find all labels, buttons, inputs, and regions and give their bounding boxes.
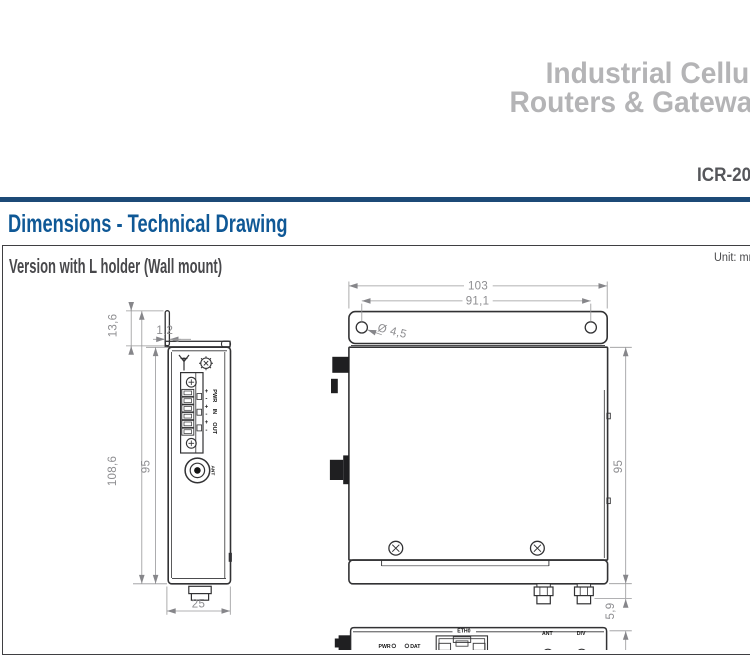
out-label: OUT — [211, 422, 217, 434]
div-port-label: DIV — [577, 631, 586, 637]
mounting-hole-right — [585, 322, 596, 333]
base-strip — [349, 560, 608, 584]
ant-port-label: ANT — [542, 631, 553, 637]
wall-bracket-side — [165, 311, 230, 347]
in-label: IN — [211, 409, 217, 415]
dim-hole-spacing: 91,1 — [466, 296, 490, 308]
technical-drawing-canvas: + - + - + - PWR IN OUT ANT — [0, 0, 750, 650]
side-antenna-connector-nut — [330, 460, 343, 480]
pin-sign: - — [205, 411, 207, 418]
antenna-ports-bottom: ANT DIV — [542, 631, 587, 650]
gear-icon — [199, 356, 213, 370]
side-connector-upper-tip — [331, 379, 338, 393]
device-body-side — [168, 347, 232, 584]
pin-sign: - — [205, 427, 207, 434]
terminal-block — [181, 373, 203, 453]
dimensions-bottom — [610, 631, 632, 650]
side-connector-upper — [332, 357, 349, 373]
pin-sign: + — [205, 403, 209, 410]
dim-connector-protrusion: 5,9 — [605, 603, 617, 620]
dim-overall-height: 108,6 — [107, 456, 119, 486]
dim-body-depth: 25 — [192, 599, 205, 611]
mounting-hole-left — [356, 322, 367, 333]
dim-bracket-thickness: 1,2 — [156, 325, 173, 337]
terminal-pin-labels: + - + - + - PWR IN OUT — [205, 388, 217, 435]
ant-connector-front — [534, 584, 553, 604]
dim-bracket-width: 103 — [468, 281, 488, 293]
screw-right — [531, 541, 545, 555]
dim-hole-diameter: Ø 4,5 — [376, 322, 408, 341]
antenna-connector-side: ANT — [185, 458, 215, 483]
side-view: + - + - + - PWR IN OUT ANT — [107, 303, 232, 615]
side-antenna-connector-bottom — [339, 635, 351, 650]
eth0-label: ETH0 — [457, 628, 470, 634]
pwr-label: PWR — [211, 389, 217, 402]
ant-label-side: ANT — [209, 465, 215, 475]
dat-led — [405, 644, 409, 648]
dat-led-label: DAT — [410, 644, 421, 650]
pwr-led-label: PWR — [378, 644, 390, 650]
antenna-icon — [179, 355, 189, 371]
pin-sign: + — [205, 388, 209, 395]
dimensions-front: 103 91,1 Ø 4,5 95 5,9 — [349, 281, 632, 620]
dim-body-height-side: 95 — [140, 460, 152, 473]
front-view: 103 91,1 Ø 4,5 95 5,9 — [330, 281, 632, 620]
div-connector-front — [575, 584, 594, 604]
pin-sign: + — [205, 419, 209, 426]
datasheet-page: { "header": { "brand_line1": "Industrial… — [0, 0, 750, 650]
side-antenna-connector-flange — [343, 455, 349, 484]
bottom-view: PWR DAT ETH0 ANT DIV — [335, 628, 632, 650]
device-body-front — [330, 347, 610, 560]
dim-bracket-tab-height: 13,6 — [108, 314, 120, 338]
status-leds: PWR DAT — [378, 644, 421, 650]
pwr-led — [392, 644, 396, 648]
dim-body-height-front: 95 — [613, 460, 625, 473]
screw-left — [389, 541, 403, 555]
pin-sign: - — [205, 396, 207, 403]
